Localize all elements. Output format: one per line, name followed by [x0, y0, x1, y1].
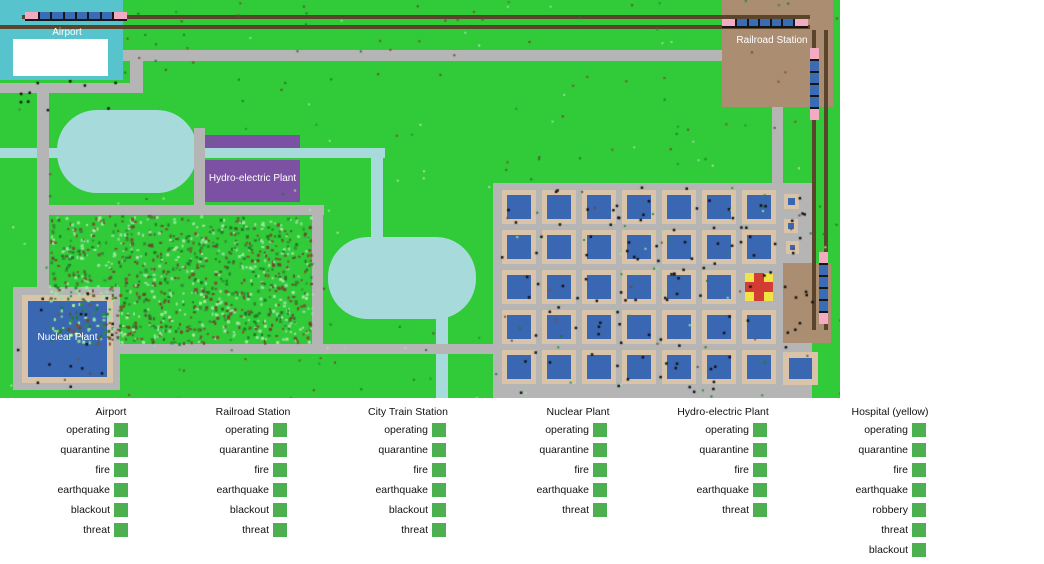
train-car [819, 277, 828, 287]
building-roof [587, 275, 611, 299]
city-building [582, 190, 616, 224]
city-building [542, 310, 576, 344]
status-label-operating: operating [623, 423, 749, 437]
train-engine [795, 19, 808, 26]
train-car [783, 19, 793, 26]
hospital-area[interactable] [745, 273, 773, 301]
train-car [52, 12, 62, 19]
status-indicator-threat [912, 523, 926, 537]
status-indicator-earthquake [114, 483, 128, 497]
building-roof [627, 355, 651, 379]
building-roof [707, 315, 731, 339]
train-car [749, 19, 759, 26]
road-under-airport [0, 83, 143, 93]
facility-column-title: Hydro-electric Plant [633, 406, 813, 418]
building-roof [789, 358, 812, 379]
status-indicator-fire [273, 463, 287, 477]
road-west-vertical [37, 83, 49, 289]
city-building [622, 230, 656, 264]
city-building [582, 310, 616, 344]
train-car [65, 12, 75, 19]
city-building [662, 230, 696, 264]
building-roof [667, 355, 691, 379]
status-label-threat: threat [782, 523, 908, 537]
rail-top-1 [22, 15, 810, 19]
airport-label: Airport [17, 27, 117, 38]
building-roof [747, 195, 771, 219]
train-car [40, 12, 50, 19]
status-indicator-operating [273, 423, 287, 437]
status-label-operating: operating [782, 423, 908, 437]
city-building [662, 350, 696, 384]
status-label-blackout: blackout [302, 503, 428, 517]
train-car [819, 265, 828, 275]
city-building [622, 310, 656, 344]
train-vertical-north[interactable] [810, 48, 819, 120]
status-label-operating: operating [0, 423, 110, 437]
city-building [542, 230, 576, 264]
building-roof [547, 315, 571, 339]
status-indicator-operating [114, 423, 128, 437]
train-airport[interactable] [25, 12, 127, 21]
railroad-station-label: Railroad Station [722, 35, 822, 46]
building-roof [747, 355, 771, 379]
status-indicator-operating [912, 423, 926, 437]
building-roof [667, 235, 691, 259]
building-roof [790, 245, 795, 250]
train-engine [25, 12, 38, 19]
status-indicator-fire [912, 463, 926, 477]
city-building [502, 270, 536, 304]
status-label-fire: fire [0, 463, 110, 477]
status-indicator-earthquake [432, 483, 446, 497]
status-label-blackout: blackout [0, 503, 110, 517]
small-building [786, 241, 799, 254]
status-label-blackout: blackout [782, 543, 908, 557]
facility-column-title: Railroad Station [163, 406, 343, 418]
status-label-fire: fire [623, 463, 749, 477]
nuclear-plant-label: Nuclear Plant [22, 332, 113, 343]
train-car [810, 61, 819, 71]
status-label-earthquake: earthquake [143, 483, 269, 497]
status-label-threat: threat [623, 503, 749, 517]
status-indicator-fire [432, 463, 446, 477]
road-airport-east [123, 50, 783, 61]
building-roof [507, 315, 531, 339]
building-roof [707, 195, 731, 219]
lake [57, 110, 197, 193]
building-roof [507, 275, 531, 299]
building-roof [747, 315, 771, 339]
status-indicator-operating [753, 423, 767, 437]
status-indicator-earthquake [593, 483, 607, 497]
city-building [582, 230, 616, 264]
building-roof [507, 235, 531, 259]
status-label-operating: operating [463, 423, 589, 437]
building-roof [627, 315, 651, 339]
building-roof [667, 315, 691, 339]
status-label-threat: threat [463, 503, 589, 517]
building-roof [547, 235, 571, 259]
train-car [77, 12, 87, 19]
road-forest-north [40, 205, 324, 215]
city-building [662, 190, 696, 224]
building-roof [547, 275, 571, 299]
status-label-quarantine: quarantine [0, 443, 110, 457]
status-label-quarantine: quarantine [463, 443, 589, 457]
train-car [810, 85, 819, 95]
status-label-quarantine: quarantine [623, 443, 749, 457]
status-indicator-blackout [114, 503, 128, 517]
train-engine [810, 48, 819, 59]
status-label-earthquake: earthquake [302, 483, 428, 497]
status-indicator-quarantine [114, 443, 128, 457]
city-building [622, 350, 656, 384]
train-car [737, 19, 747, 26]
status-label-earthquake: earthquake [782, 483, 908, 497]
status-label-quarantine: quarantine [143, 443, 269, 457]
train-car [89, 12, 99, 19]
train-car [760, 19, 770, 26]
hydro-plant-label: Hydro-electric Plant [205, 173, 300, 184]
train-car [810, 73, 819, 83]
facility-column-title: Hospital (yellow) [800, 406, 980, 418]
train-car [819, 289, 828, 299]
city-map[interactable]: Airport Railroad Station City Train Stat… [0, 0, 840, 398]
road-forest-east [312, 210, 323, 350]
status-indicator-operating [432, 423, 446, 437]
building-roof [587, 355, 611, 379]
city-building [662, 270, 696, 304]
status-indicator-earthquake [273, 483, 287, 497]
city-building [702, 230, 736, 264]
city-building [502, 190, 536, 224]
status-indicator-quarantine [912, 443, 926, 457]
status-label-quarantine: quarantine [302, 443, 428, 457]
city-building [702, 310, 736, 344]
status-indicator-threat [593, 503, 607, 517]
status-label-robbery: robbery [782, 503, 908, 517]
city-building [742, 350, 776, 384]
game-screen: Airport Railroad Station City Train Stat… [0, 0, 1044, 564]
status-panel: Airportoperatingquarantinefireearthquake… [0, 398, 1044, 564]
status-label-threat: threat [302, 523, 428, 537]
building-roof [587, 235, 611, 259]
status-label-operating: operating [143, 423, 269, 437]
status-indicator-earthquake [753, 483, 767, 497]
train-engine [819, 313, 828, 324]
city-building [622, 270, 656, 304]
city-building [582, 270, 616, 304]
city-building [542, 270, 576, 304]
river-vertical-2 [436, 315, 448, 398]
city-building [702, 270, 736, 304]
building-roof [707, 275, 731, 299]
status-indicator-quarantine [432, 443, 446, 457]
city-building [542, 190, 576, 224]
status-indicator-threat [273, 523, 287, 537]
status-label-earthquake: earthquake [463, 483, 589, 497]
building-roof [587, 195, 611, 219]
building-roof [507, 355, 531, 379]
building-roof [788, 198, 795, 205]
road-lake-east [194, 128, 205, 210]
train-engine [810, 109, 819, 120]
train-engine [114, 12, 127, 19]
status-label-fire: fire [782, 463, 908, 477]
status-indicator-quarantine [593, 443, 607, 457]
status-label-blackout: blackout [143, 503, 269, 517]
status-indicator-quarantine [753, 443, 767, 457]
building-roof [667, 195, 691, 219]
train-car [772, 19, 782, 26]
rail-top-2 [0, 25, 810, 29]
status-label-fire: fire [143, 463, 269, 477]
building-roof [747, 235, 771, 259]
building-roof [707, 235, 731, 259]
status-indicator-threat [114, 523, 128, 537]
status-label-quarantine: quarantine [782, 443, 908, 457]
status-indicator-blackout [912, 543, 926, 557]
status-indicator-threat [753, 503, 767, 517]
status-label-earthquake: earthquake [0, 483, 110, 497]
building-roof [707, 355, 731, 379]
building-roof [507, 195, 531, 219]
status-indicator-robbery [912, 503, 926, 517]
building-roof [667, 275, 691, 299]
pond [328, 237, 476, 319]
status-indicator-blackout [432, 503, 446, 517]
building-roof [627, 195, 651, 219]
airport-runway [13, 39, 108, 76]
small-building [784, 219, 798, 233]
train-engine [722, 19, 735, 26]
status-label-fire: fire [302, 463, 428, 477]
status-label-fire: fire [463, 463, 589, 477]
city-building [502, 310, 536, 344]
building-roof [547, 355, 571, 379]
city-building [742, 310, 776, 344]
train-car [819, 301, 828, 311]
city-building [582, 350, 616, 384]
building-roof [627, 235, 651, 259]
status-indicator-threat [432, 523, 446, 537]
city-building [783, 352, 818, 385]
status-indicator-fire [753, 463, 767, 477]
building-roof [788, 223, 794, 229]
train-engine [819, 252, 828, 263]
city-building [622, 190, 656, 224]
hospital-cross-horizontal [745, 282, 773, 292]
status-label-earthquake: earthquake [623, 483, 749, 497]
city-building [742, 190, 776, 224]
city-building [502, 350, 536, 384]
city-building [662, 310, 696, 344]
city-building [502, 230, 536, 264]
road-nuclear-east [108, 344, 500, 354]
train-railroad-station[interactable] [722, 19, 808, 28]
city-building [702, 350, 736, 384]
train-car [102, 12, 112, 19]
small-building [784, 194, 799, 209]
building-roof [587, 315, 611, 339]
status-indicator-operating [593, 423, 607, 437]
status-indicator-fire [593, 463, 607, 477]
building-roof [627, 275, 651, 299]
facility-column-title: City Train Station [318, 406, 498, 418]
status-indicator-earthquake [912, 483, 926, 497]
city-building [542, 350, 576, 384]
city-building [742, 230, 776, 264]
train-car [810, 97, 819, 107]
building-roof [547, 195, 571, 219]
status-label-threat: threat [143, 523, 269, 537]
train-vertical-city[interactable] [819, 252, 828, 324]
city-building [702, 190, 736, 224]
hydro-plant-upper[interactable] [205, 135, 300, 148]
river-vertical-1 [371, 152, 383, 240]
status-indicator-blackout [273, 503, 287, 517]
status-label-operating: operating [302, 423, 428, 437]
status-indicator-quarantine [273, 443, 287, 457]
status-label-threat: threat [0, 523, 110, 537]
status-indicator-fire [114, 463, 128, 477]
